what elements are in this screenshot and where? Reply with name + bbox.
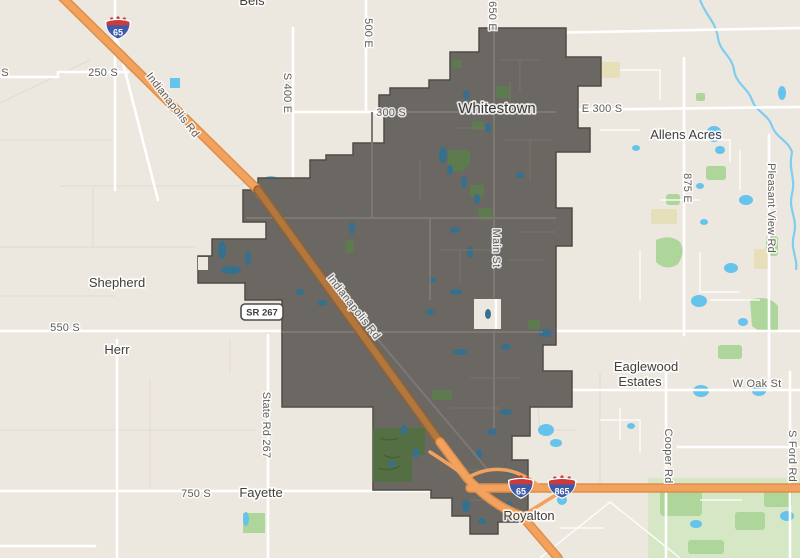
road-label-300-s: 300 S [376, 107, 406, 119]
svg-text:65: 65 [113, 28, 123, 38]
road-label-main-st: Main St [490, 229, 502, 268]
place-label-estates: Estates [618, 374, 662, 389]
road-label-pleasant-view-rd: Pleasant View Rd [765, 163, 777, 253]
place-label-bels: Bels [239, 0, 265, 8]
place-label-royalton: Royalton [503, 508, 554, 523]
road-label-w-oak-st: W Oak St [733, 378, 782, 390]
svg-text:SR 267: SR 267 [246, 308, 278, 319]
road-label-s-ford-rd: S Ford Rd [786, 430, 798, 482]
road-label-cooper-rd: Cooper Rd [662, 429, 674, 484]
road-label-s-400-e: S 400 E [281, 73, 293, 114]
place-label-eaglewood: Eaglewood [614, 359, 678, 374]
place-label-herr: Herr [104, 342, 130, 357]
state-route-shield-sr-267: SR 267 [241, 304, 283, 320]
road-label-650-e: 650 E [486, 1, 498, 31]
road-label-550-s: 550 S [50, 322, 80, 334]
svg-text:865: 865 [554, 487, 569, 497]
map-canvas[interactable]: S250 SIndianapolis RdIndianapolis RdS 40… [0, 0, 800, 558]
road-label-s: S [1, 67, 9, 79]
road-label-e-300-s: E 300 S [582, 103, 623, 115]
svg-text:65: 65 [516, 487, 526, 497]
place-label-shepherd: Shepherd [89, 275, 145, 290]
road-label-state-rd-267: State Rd 267 [260, 392, 272, 459]
place-label-whitestown: Whitestown [458, 100, 536, 117]
place-label-allens-acres: Allens Acres [650, 127, 722, 142]
boundary-notch-west [198, 257, 208, 270]
whitestown-boundary-map: S250 SIndianapolis RdIndianapolis RdS 40… [0, 0, 800, 558]
road-label-250-s: 250 S [88, 67, 118, 79]
road-label-500-e: 500 E [362, 18, 374, 48]
road-label-750-s: 750 S [181, 488, 211, 500]
place-label-fayette: Fayette [239, 485, 282, 500]
road-label-875-e: 875 E [681, 173, 693, 203]
